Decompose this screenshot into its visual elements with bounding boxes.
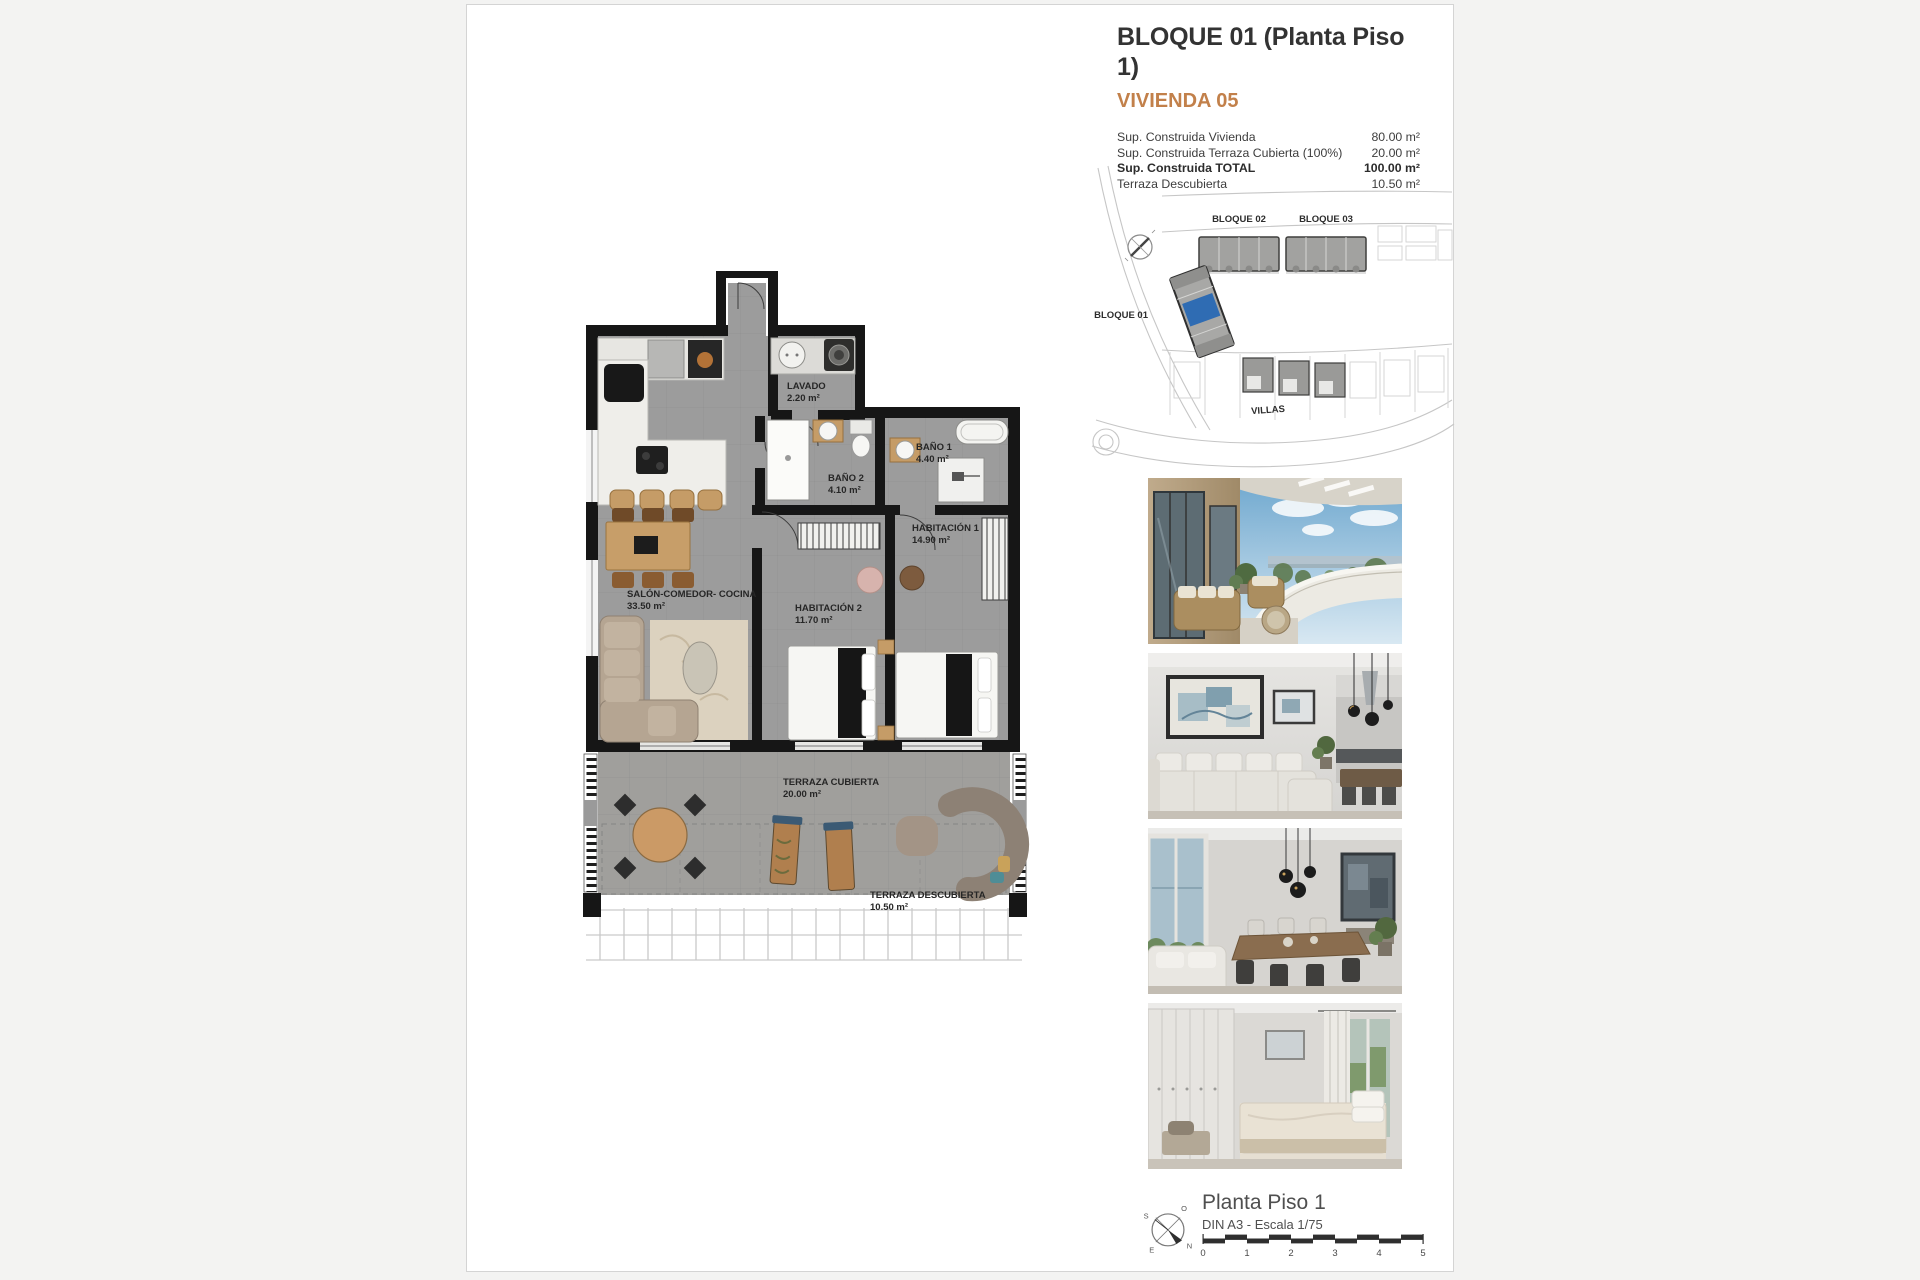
site-building-bloque03 <box>1286 237 1366 274</box>
area-row: Sup. Construida Vivienda 80.00 m² <box>1117 130 1420 146</box>
photo-bedroom-render <box>1148 1003 1402 1169</box>
photo-living-room-render <box>1148 653 1402 819</box>
toilet-icon <box>852 435 870 457</box>
room-label-lavado: LAVADO <box>787 381 826 392</box>
vivienda-title: VIVIENDA 05 <box>1117 89 1420 113</box>
svg-text:10.50 m²: 10.50 m² <box>870 902 908 913</box>
compass-letter-n: N <box>1187 1242 1192 1251</box>
site-label-bloque02: BLOQUE 02 <box>1212 214 1266 225</box>
scale-tick-5: 5 <box>1420 1248 1425 1259</box>
svg-text:4.40 m²: 4.40 m² <box>916 454 949 465</box>
area-row: Sup. Construida Terraza Cubierta (100%) … <box>1117 146 1420 162</box>
dining-furniture <box>606 508 694 588</box>
site-label-bloque01: BLOQUE 01 <box>1094 310 1149 321</box>
scale-tick-1: 1 <box>1244 1248 1249 1259</box>
photo-dining-room-render <box>1148 828 1402 994</box>
laundry-fixtures <box>771 338 855 374</box>
room-label-terraza-cubierta: TERRAZA CUBIERTA <box>783 777 879 788</box>
wardrobe-icon <box>982 518 1008 600</box>
site-plan: BLOQUE 02 BLOQUE 03 BLOQUE 01 VILLAS <box>1085 160 1455 470</box>
site-building-bloque02 <box>1199 237 1279 274</box>
wardrobe-icon <box>798 523 880 549</box>
scale-bar: 0 1 2 3 4 5 <box>1198 1231 1428 1261</box>
floor-plan: LAVADO 2.20 m² BAÑO 2 4.10 m² BAÑO 1 4.4… <box>575 268 1045 968</box>
sheet-title: BLOQUE 01 (Planta Piso 1) <box>1117 22 1420 82</box>
ottoman-icon <box>896 816 938 856</box>
area-label: Sup. Construida Vivienda <box>1117 130 1256 146</box>
sink-icon <box>819 422 837 440</box>
armchair-icon <box>900 566 924 590</box>
fridge-icon <box>648 340 684 378</box>
svg-text:2.20 m²: 2.20 m² <box>787 393 820 404</box>
compass-letter-e: E <box>1149 1245 1154 1254</box>
compass-icon: O S E N <box>1138 1198 1198 1258</box>
drawing-scale-info: DIN A3 - Escala 1/75 <box>1202 1217 1462 1232</box>
site-villas-buildings <box>1243 358 1345 397</box>
armchair-icon <box>857 567 883 593</box>
sink-icon <box>896 441 914 459</box>
scale-tick-4: 4 <box>1376 1248 1381 1259</box>
svg-text:4.10 m²: 4.10 m² <box>828 485 861 496</box>
svg-text:33.50 m²: 33.50 m² <box>627 601 665 612</box>
plan-sheet-canvas: BLOQUE 01 (Planta Piso 1) VIVIENDA 05 Su… <box>0 0 1920 1280</box>
svg-text:14.90 m²: 14.90 m² <box>912 535 950 546</box>
room-label-habitacion1: HABITACIÓN 1 <box>912 522 980 534</box>
site-building-bloque01 <box>1170 266 1234 358</box>
scale-tick-2: 2 <box>1288 1248 1293 1259</box>
compass-letter-o: O <box>1181 1204 1187 1213</box>
site-label-villas: VILLAS <box>1251 404 1285 417</box>
drawing-title: Planta Piso 1 <box>1202 1192 1462 1214</box>
footer-text-block: Planta Piso 1 DIN A3 - Escala 1/75 <box>1202 1192 1462 1232</box>
site-compass-icon <box>1125 230 1155 261</box>
area-value: 80.00 m² <box>1371 130 1420 146</box>
svg-text:11.70 m²: 11.70 m² <box>795 615 833 626</box>
photo-terrace-render <box>1148 478 1402 644</box>
svg-text:20.00 m²: 20.00 m² <box>783 789 821 800</box>
coffee-table-icon <box>683 642 717 694</box>
terrace-table-icon <box>633 808 687 862</box>
scale-tick-3: 3 <box>1332 1248 1337 1259</box>
compass-letter-s: S <box>1144 1212 1149 1221</box>
area-value: 20.00 m² <box>1371 146 1420 162</box>
room-label-terraza-descubierta: TERRAZA DESCUBIERTA <box>870 890 986 901</box>
room-label-bano2: BAÑO 2 <box>828 473 864 484</box>
area-label: Sup. Construida Terraza Cubierta (100%) <box>1117 146 1342 162</box>
bed-icon <box>1240 1091 1386 1169</box>
sink-icon <box>779 342 805 368</box>
room-label-salon: SALÓN-COMEDOR- COCINA <box>627 588 756 600</box>
sink-icon <box>604 364 644 402</box>
room-label-bano1: BAÑO 1 <box>916 442 953 453</box>
site-label-bloque03: BLOQUE 03 <box>1299 214 1353 225</box>
pergola-lines <box>586 908 1022 960</box>
cooktop-icon <box>636 446 668 474</box>
room-label-habitacion2: HABITACIÓN 2 <box>795 602 862 614</box>
living-furniture <box>600 616 748 742</box>
scale-tick-0: 0 <box>1200 1248 1205 1259</box>
